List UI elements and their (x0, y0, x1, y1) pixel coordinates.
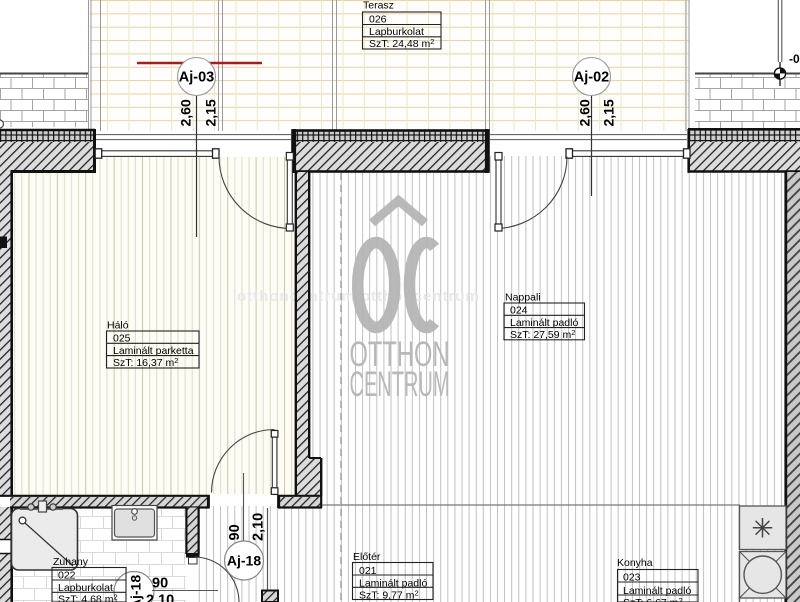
svg-text:024: 024 (510, 305, 528, 317)
svg-text:2,60: 2,60 (178, 99, 194, 126)
svg-text:SzT: 24,48 m2: SzT: 24,48 m2 (369, 37, 434, 50)
svg-text:Laminált parketta: Laminált parketta (113, 345, 194, 357)
svg-text:026: 026 (369, 14, 387, 26)
svg-text:-0: -0 (789, 52, 800, 66)
svg-text:Zuhany: Zuhany (53, 556, 89, 568)
svg-text:Aj-18: Aj-18 (128, 575, 144, 602)
svg-text:90: 90 (152, 576, 168, 592)
svg-text:90: 90 (227, 524, 243, 540)
svg-text:Terasz: Terasz (363, 0, 394, 12)
svg-text:Konyha: Konyha (617, 557, 653, 569)
svg-text:SzT: 4,68 m2: SzT: 4,68 m2 (58, 593, 118, 602)
svg-text:Laminált padló: Laminált padló (510, 317, 578, 329)
svg-text:Aj-02: Aj-02 (574, 70, 609, 86)
svg-text:2,60: 2,60 (577, 99, 593, 126)
svg-text:025: 025 (113, 333, 131, 345)
svg-text:SzT: 16,37 m2: SzT: 16,37 m2 (113, 356, 178, 369)
svg-text:Aj-18: Aj-18 (227, 553, 261, 569)
svg-text:Nappali: Nappali (505, 292, 541, 304)
svg-text:SzT: 6,67 m2: SzT: 6,67 m2 (623, 596, 683, 602)
svg-text:2,15: 2,15 (601, 99, 617, 126)
svg-text:Előtér: Előtér (353, 551, 381, 563)
svg-text:Aj-03: Aj-03 (179, 70, 214, 86)
svg-text:Háló: Háló (107, 320, 129, 332)
svg-text:2,15: 2,15 (203, 99, 219, 126)
svg-text:Lapburkolat: Lapburkolat (369, 26, 424, 38)
svg-text:2,10: 2,10 (251, 513, 267, 541)
svg-text:SzT: 27,59 m2: SzT: 27,59 m2 (510, 328, 575, 341)
svg-text:2,10: 2,10 (146, 593, 174, 602)
svg-text:CENTRUM: CENTRUM (350, 364, 450, 404)
